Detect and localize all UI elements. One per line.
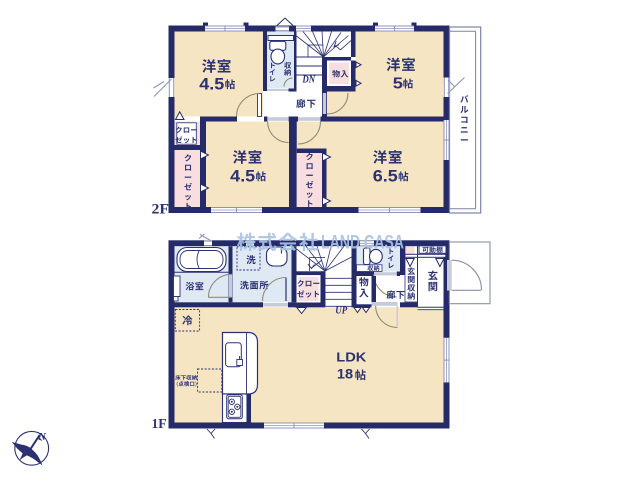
svg-text:4.5: 4.5 xyxy=(230,168,255,186)
svg-text:UP: UP xyxy=(335,304,347,316)
svg-text:N: N xyxy=(37,432,46,443)
svg-text:): ) xyxy=(195,382,197,388)
svg-text:4.5: 4.5 xyxy=(199,76,224,94)
svg-text:5: 5 xyxy=(393,76,403,93)
svg-text:2F: 2F xyxy=(152,201,170,217)
svg-text:1F: 1F xyxy=(152,417,167,432)
svg-text:DN: DN xyxy=(302,74,317,86)
svg-text:LDK: LDK xyxy=(336,349,367,364)
svg-text:(: ( xyxy=(176,382,178,388)
svg-text:LAND CASA: LAND CASA xyxy=(321,232,404,254)
svg-text:6.5: 6.5 xyxy=(373,168,398,186)
svg-text:18: 18 xyxy=(337,367,354,382)
